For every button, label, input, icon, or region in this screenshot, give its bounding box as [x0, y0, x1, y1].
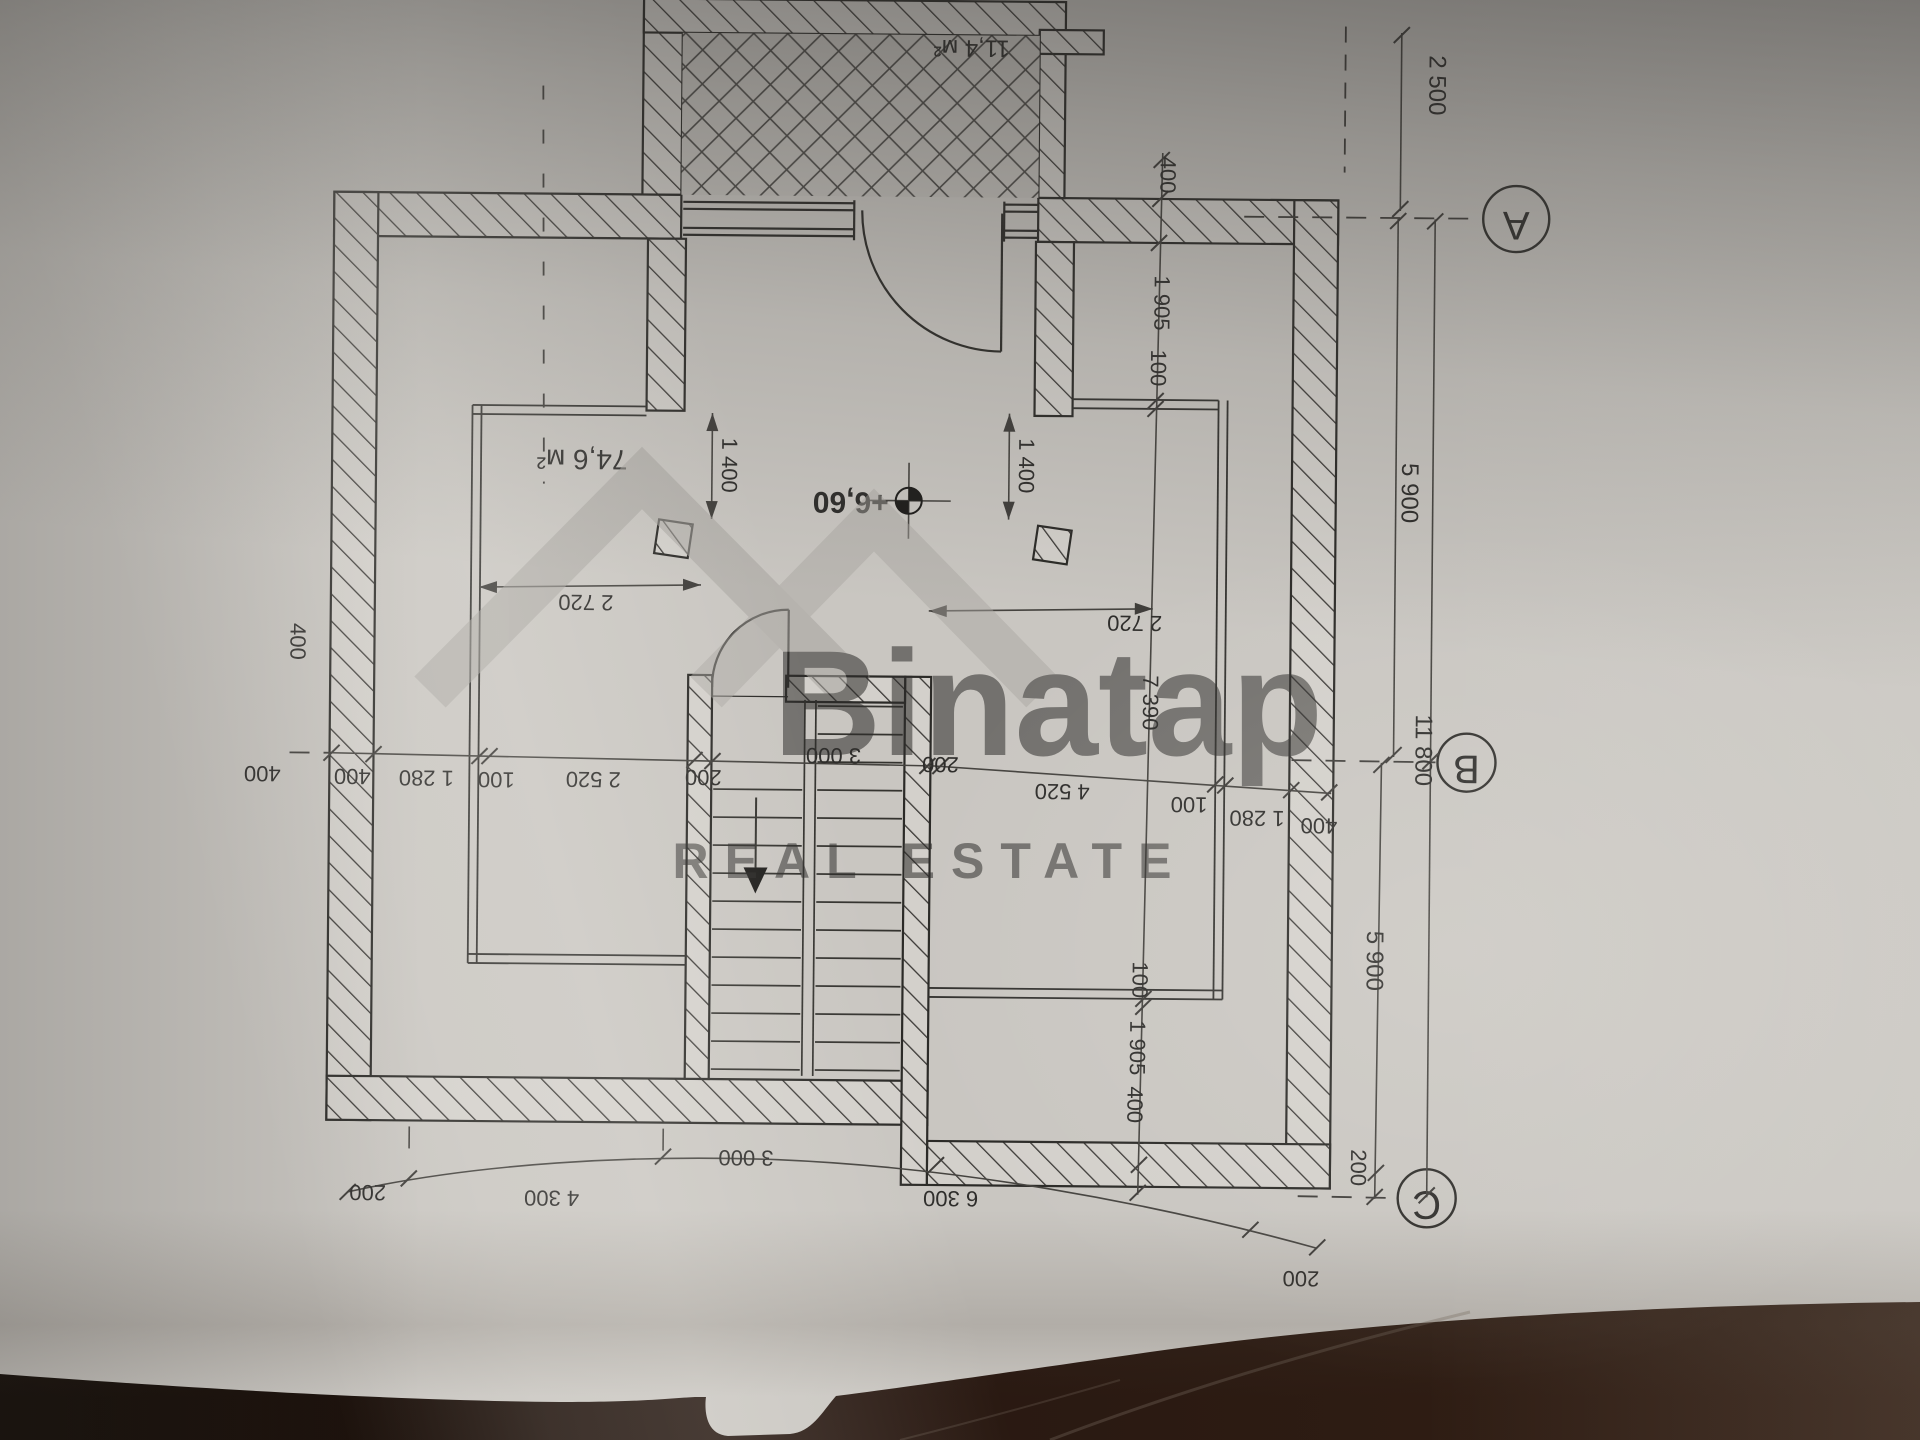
- dim-label: 1 280: [399, 765, 454, 790]
- dim-label: 400: [244, 761, 281, 786]
- dim-label: 2 520: [566, 767, 621, 792]
- dim-label: 100: [1146, 349, 1171, 386]
- wall: [326, 192, 378, 1120]
- balcony-wall-return: [1040, 30, 1104, 55]
- grid-bubble-b-label: B: [1453, 747, 1480, 791]
- dim-label: 6 300: [923, 1186, 978, 1211]
- dim-label: 5 900: [1396, 463, 1424, 523]
- dim-label: 400: [334, 764, 371, 789]
- column-right: [1033, 526, 1072, 565]
- wall-stub-right: [1034, 242, 1074, 416]
- dim-label: 2 720: [558, 590, 613, 615]
- dim-label: 100: [478, 767, 515, 792]
- grid-bubble-a-label: A: [1502, 203, 1529, 247]
- wall: [334, 192, 681, 239]
- dim-label: 200: [1346, 1149, 1371, 1186]
- dim-label: 3 000: [718, 1145, 773, 1170]
- dim-label: 1 905: [1149, 275, 1174, 330]
- dim-label: 4 300: [524, 1185, 579, 1210]
- balcony-wall-front: [644, 0, 1066, 36]
- dim-label: 200: [349, 1180, 386, 1205]
- door-leaf: [1001, 214, 1002, 352]
- dim-label: 1 400: [717, 438, 742, 493]
- dim-label: 100: [1127, 961, 1152, 998]
- dim-label: 400: [1122, 1086, 1147, 1123]
- floor-plan-drawing: A B C 2 500 5 900 5 900 200 11 800: [0, 0, 1920, 1440]
- dim-label: 11 800: [1409, 714, 1437, 786]
- watermark-brand: Binatap: [773, 619, 1323, 787]
- dim-label: 1 905: [1125, 1020, 1150, 1075]
- watermark-tagline: REAL ESTATE: [673, 833, 1188, 889]
- wall-stub-left: [647, 238, 686, 410]
- wall: [927, 1141, 1330, 1189]
- dim-label: 400: [1300, 813, 1337, 838]
- room-area-label-attic: 74,6 м²: [537, 444, 628, 476]
- dim-label: 1 280: [1229, 806, 1284, 831]
- dim-label: 1 400: [1014, 438, 1039, 493]
- dim-label: 400: [285, 623, 310, 660]
- dim-label: 2 500: [1423, 55, 1451, 115]
- dim-label: 200: [1283, 1266, 1320, 1291]
- balcony-wall-right: [1038, 32, 1065, 198]
- dim-label: 5 900: [1360, 931, 1388, 991]
- dim-label: 100: [1171, 792, 1208, 817]
- dim-label: 400: [1155, 157, 1180, 194]
- room-area-label-balcony: 11,4 м²: [934, 34, 1010, 62]
- photo-of-floor-plan: A B C 2 500 5 900 5 900 200 11 800: [0, 0, 1920, 1440]
- wall: [326, 1076, 927, 1125]
- dim-label: 200: [685, 765, 722, 790]
